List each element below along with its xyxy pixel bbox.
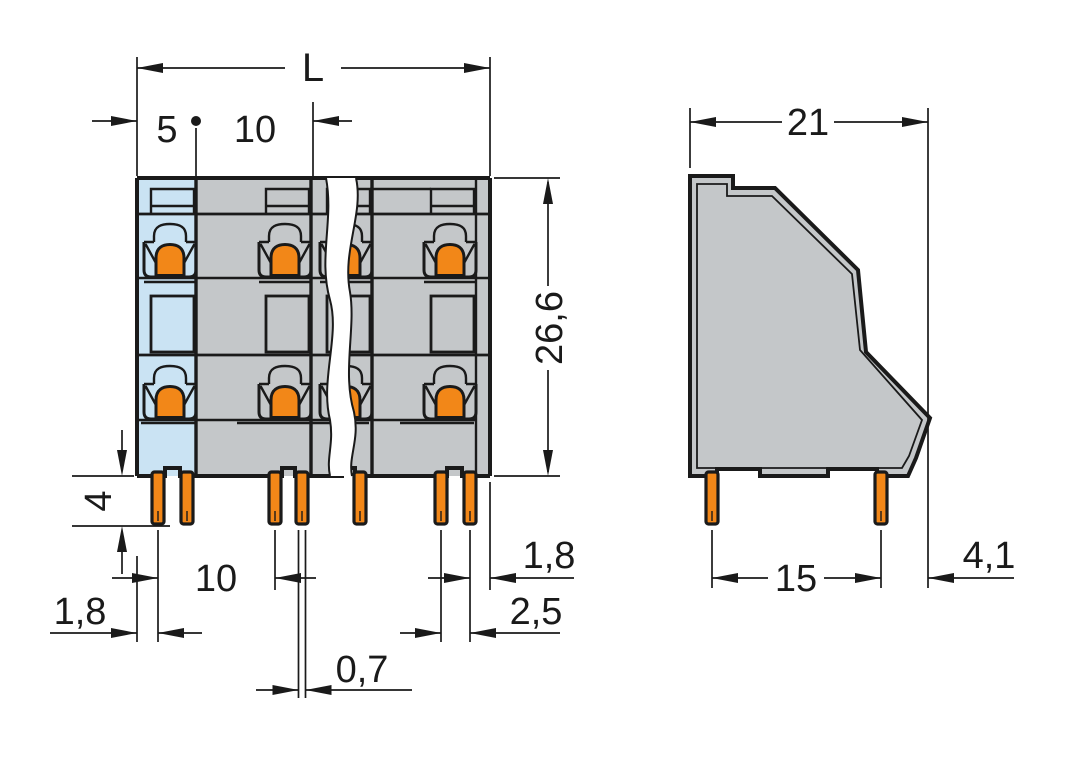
dim-label-pin-spacing: 15 bbox=[775, 558, 817, 600]
first-pole-highlight bbox=[137, 178, 196, 476]
pin bbox=[464, 472, 476, 524]
dim-label-depth: 21 bbox=[787, 102, 829, 144]
pin bbox=[296, 472, 308, 524]
pin bbox=[152, 472, 164, 524]
dim-height: 26,6 bbox=[494, 178, 571, 476]
front-view: L 5 10 26,6 4 bbox=[50, 46, 575, 698]
dim-label-pin-pitch: 10 bbox=[195, 558, 237, 600]
dim-label-right-offset: 1,8 bbox=[523, 535, 576, 577]
side-view: 21 15 4,1 bbox=[690, 102, 1015, 600]
dim-label-rear-offset: 4,1 bbox=[963, 535, 1016, 577]
pin bbox=[435, 472, 447, 524]
pin bbox=[269, 472, 281, 524]
dim-label-overall-width: L bbox=[302, 46, 324, 90]
dim-chain-dot bbox=[191, 116, 201, 126]
dim-top-pitch: 5 10 bbox=[92, 102, 352, 176]
pin bbox=[181, 472, 193, 524]
dim-label-edge-to-center: 5 bbox=[156, 109, 177, 151]
dim-pin-to-right-edge: 1,8 bbox=[428, 535, 575, 583]
side-solder-pins bbox=[706, 472, 887, 524]
dim-pin-thickness: 0,7 bbox=[256, 649, 412, 695]
terminal-block-dimension-drawing: L 5 10 26,6 4 bbox=[0, 0, 1080, 769]
dim-rear-offset: 4,1 bbox=[928, 535, 1015, 583]
dim-label-top-pitch: 10 bbox=[234, 109, 276, 151]
dim-pin-row-offset: 2,5 bbox=[400, 591, 562, 638]
dim-pin-pitch-bottom: 10 bbox=[112, 558, 316, 600]
pin bbox=[354, 472, 366, 524]
dim-label-row-offset: 2,5 bbox=[510, 591, 563, 633]
front-solder-pins bbox=[152, 472, 476, 524]
dim-label-height: 26,6 bbox=[529, 291, 571, 365]
side-profile bbox=[690, 176, 930, 476]
dim-label-pin-thickness: 0,7 bbox=[336, 649, 389, 691]
dim-pin-spacing: 15 bbox=[712, 530, 881, 600]
pin bbox=[875, 472, 887, 524]
dimension-drawing-page: L 5 10 26,6 4 bbox=[0, 0, 1080, 769]
dim-left-edge-to-pin: 1,8 bbox=[50, 591, 202, 638]
dim-label-pin-length: 4 bbox=[78, 490, 120, 511]
pin bbox=[706, 472, 718, 524]
dim-label-left-offset: 1,8 bbox=[54, 591, 107, 633]
